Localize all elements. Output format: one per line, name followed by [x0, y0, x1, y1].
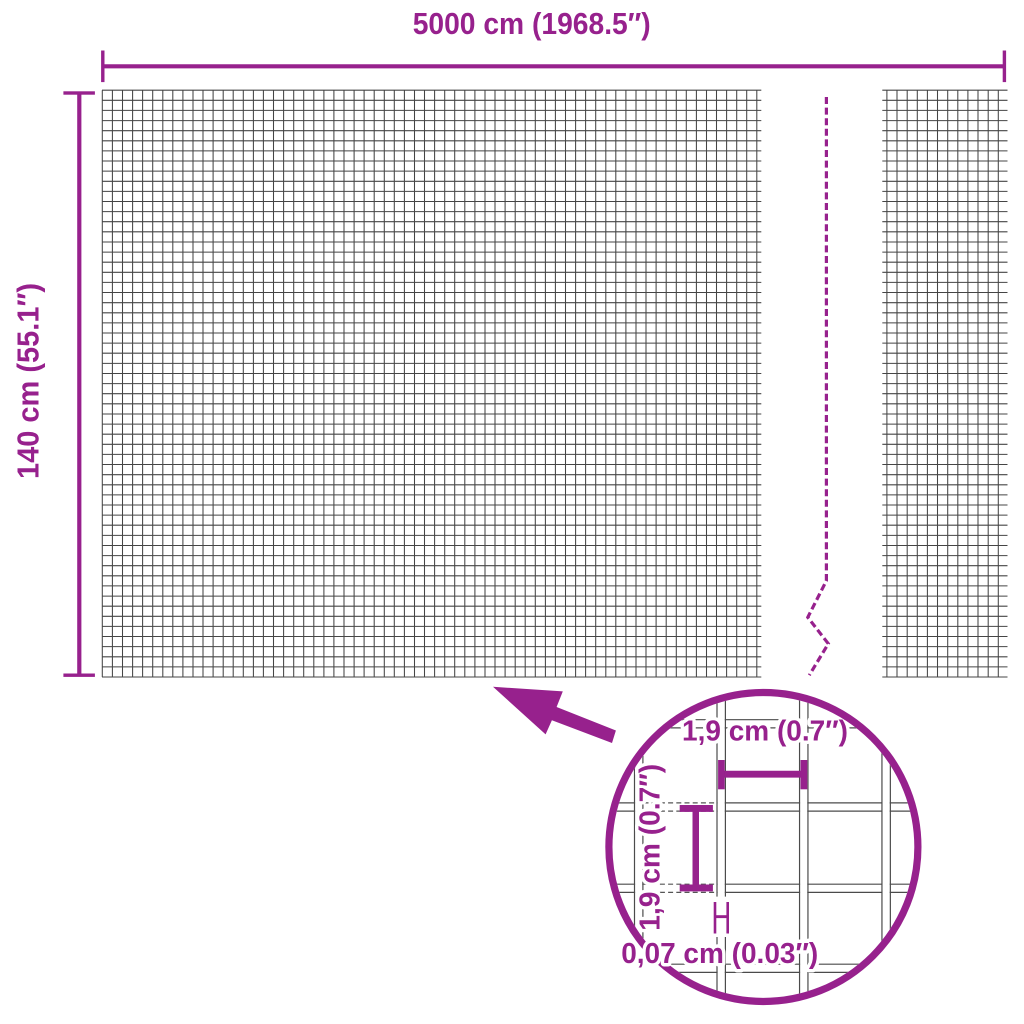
svg-text:0,07 cm (0.03″): 0,07 cm (0.03″)	[621, 938, 818, 970]
svg-text:1,9 cm (0.7″): 1,9 cm (0.7″)	[682, 716, 848, 748]
svg-text:1,9 cm (0.7″): 1,9 cm (0.7″)	[635, 764, 667, 931]
svg-text:140 cm (55.1″): 140 cm (55.1″)	[11, 283, 46, 479]
svg-text:5000 cm (1968.5″): 5000 cm (1968.5″)	[413, 6, 651, 41]
